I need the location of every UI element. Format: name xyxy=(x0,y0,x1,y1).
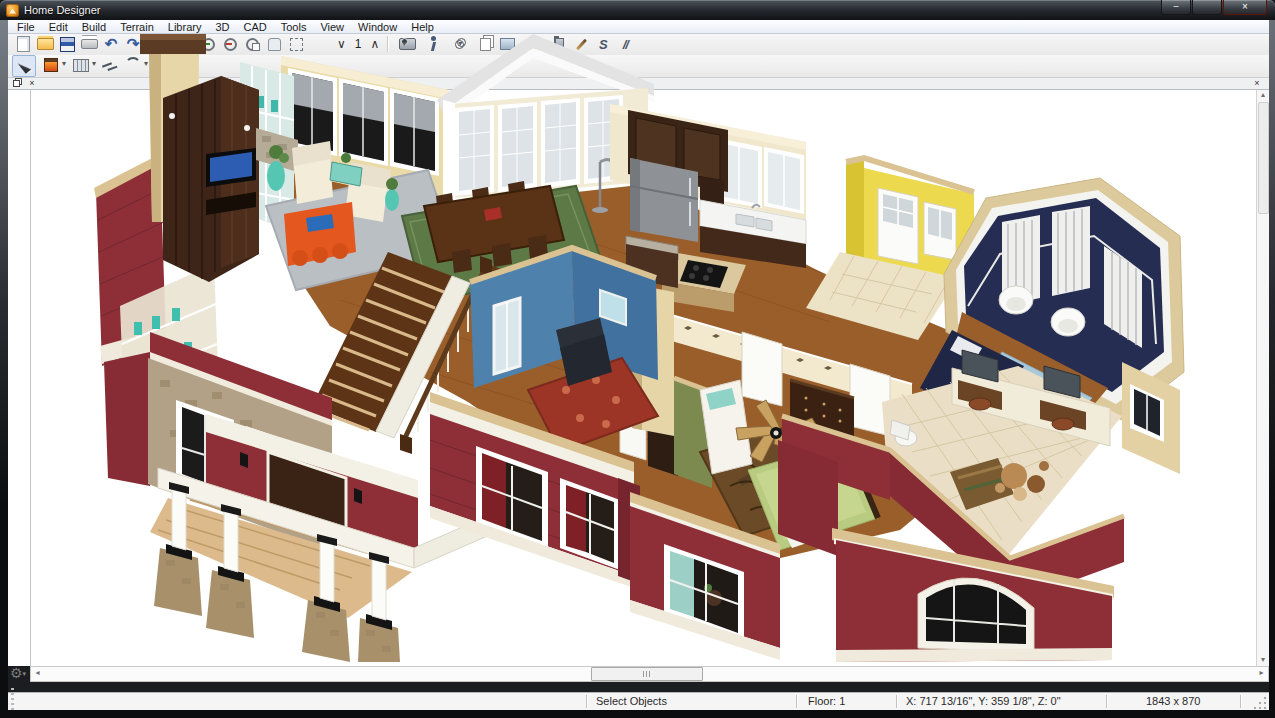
fill-window-icon[interactable] xyxy=(285,34,307,54)
scroll-left-icon[interactable]: ◂ xyxy=(31,667,44,679)
new-plan-icon[interactable] xyxy=(12,34,34,54)
spray-material-icon[interactable] xyxy=(548,34,570,54)
hatch-icon[interactable]: // xyxy=(614,34,636,54)
eyedropper-icon[interactable] xyxy=(570,34,592,54)
dock-drag-handle[interactable] xyxy=(11,688,14,710)
toolbar-main: ↶↷? ∨ 1 ∧ S// xyxy=(8,33,1269,56)
title-bar[interactable]: Home Designer –× xyxy=(0,0,1275,20)
menu-item[interactable]: Edit xyxy=(42,21,75,33)
floor-up-icon[interactable]: ∧ xyxy=(366,37,383,51)
menu-item[interactable]: Build xyxy=(75,21,113,33)
menu-item[interactable]: File xyxy=(10,21,42,33)
restore-pane-icon[interactable] xyxy=(11,78,23,88)
window-frame-bottom xyxy=(0,710,1275,718)
separator xyxy=(192,36,193,52)
status-bar: Select Objects Floor: 1 X: 717 13/16", Y… xyxy=(8,692,1269,711)
walkthrough-icon[interactable] xyxy=(422,34,444,54)
close-pane-icon[interactable]: × xyxy=(26,78,38,88)
menu-item[interactable]: Terrain xyxy=(113,21,161,33)
redo-icon[interactable]: ↷ xyxy=(122,34,144,54)
status-floor: Floor: 1 xyxy=(808,695,845,707)
pan-icon[interactable] xyxy=(263,34,285,54)
resize-grip[interactable] xyxy=(1254,696,1267,709)
fireplace-icon[interactable] xyxy=(36,55,66,75)
status-coordinates: X: 717 13/16", Y: 359 1/8", Z: 0" xyxy=(906,695,1061,707)
undo-icon[interactable]: ↶ xyxy=(100,34,122,54)
window-title: Home Designer xyxy=(24,4,100,16)
menu-item[interactable]: View xyxy=(313,21,351,33)
dimension-icon[interactable]: ↔ xyxy=(148,55,178,75)
camera-icon[interactable] xyxy=(392,34,422,54)
menu-item[interactable]: Library xyxy=(161,21,209,33)
menu-bar: FileEditBuildTerrainLibrary3DCADToolsVie… xyxy=(8,20,1269,34)
render-technique-icon[interactable] xyxy=(518,34,548,54)
plan-3d-view[interactable] xyxy=(31,89,1257,667)
menu-item[interactable]: CAD xyxy=(236,21,273,33)
straight-wall-icon[interactable] xyxy=(66,55,96,75)
vertical-scrollbar[interactable]: ▴ ▾ xyxy=(1256,89,1269,666)
toolbar-edit: ↔ xyxy=(8,55,1269,78)
menu-item[interactable]: Help xyxy=(404,21,441,33)
left-toolbar-dock xyxy=(8,89,31,666)
scroll-down-icon[interactable]: ▾ xyxy=(1257,654,1269,666)
separator xyxy=(387,36,388,52)
print-icon[interactable] xyxy=(78,34,100,54)
open-plan-icon[interactable] xyxy=(34,34,56,54)
menu-item[interactable]: 3D xyxy=(208,21,236,33)
selected-zoom-icon[interactable] xyxy=(241,34,263,54)
save-plan-icon[interactable] xyxy=(56,34,78,54)
chevron-down-icon: ▾ xyxy=(23,670,27,677)
copy-view-icon[interactable] xyxy=(474,34,496,54)
maximize-button[interactable] xyxy=(1192,0,1222,15)
floor-selector: ∨ 1 ∧ xyxy=(333,37,383,51)
close-button[interactable]: × xyxy=(1223,0,1267,15)
curve-line-icon[interactable] xyxy=(118,55,148,75)
close-view-icon[interactable]: × xyxy=(1251,78,1263,88)
horizontal-scroll-thumb[interactable] xyxy=(591,667,703,681)
window-frame-right xyxy=(1269,20,1275,718)
status-view-size: 1843 x 870 xyxy=(1146,695,1200,707)
vertical-scroll-thumb[interactable] xyxy=(1258,102,1269,214)
window-frame-left xyxy=(0,20,8,718)
scroll-right-icon[interactable]: ▸ xyxy=(1255,667,1268,679)
workspace: ▴ ▾ xyxy=(8,89,1269,666)
menu-item[interactable]: Tools xyxy=(274,21,314,33)
view-tab-strip: × × xyxy=(8,77,1269,90)
glasses-icon[interactable] xyxy=(444,34,474,54)
scroll-up-icon[interactable]: ▴ xyxy=(1257,89,1269,101)
menu-item[interactable]: Window xyxy=(351,21,404,33)
horizontal-scrollbar[interactable]: ◂ ▸ xyxy=(30,666,1269,682)
floor-number: 1 xyxy=(350,37,367,51)
library-browser-icon[interactable] xyxy=(144,34,166,54)
zoom-in-icon[interactable] xyxy=(197,34,219,54)
spline-icon[interactable]: S xyxy=(592,34,614,54)
gear-icon: ⚙ xyxy=(10,665,23,681)
status-mode: Select Objects xyxy=(596,695,667,707)
break-line-icon[interactable] xyxy=(96,55,118,75)
zoom-out-icon[interactable] xyxy=(219,34,241,54)
select-objects-icon[interactable] xyxy=(12,55,36,77)
floor-down-icon[interactable]: ∨ xyxy=(333,37,350,51)
export-picture-icon[interactable] xyxy=(496,34,518,54)
minimize-button[interactable]: – xyxy=(1161,0,1191,15)
help-icon[interactable]: ? xyxy=(166,34,188,54)
home-designer-window: Home Designer –× FileEditBuildTerrainLib… xyxy=(0,0,1275,718)
app-icon-home-designer xyxy=(6,4,19,17)
